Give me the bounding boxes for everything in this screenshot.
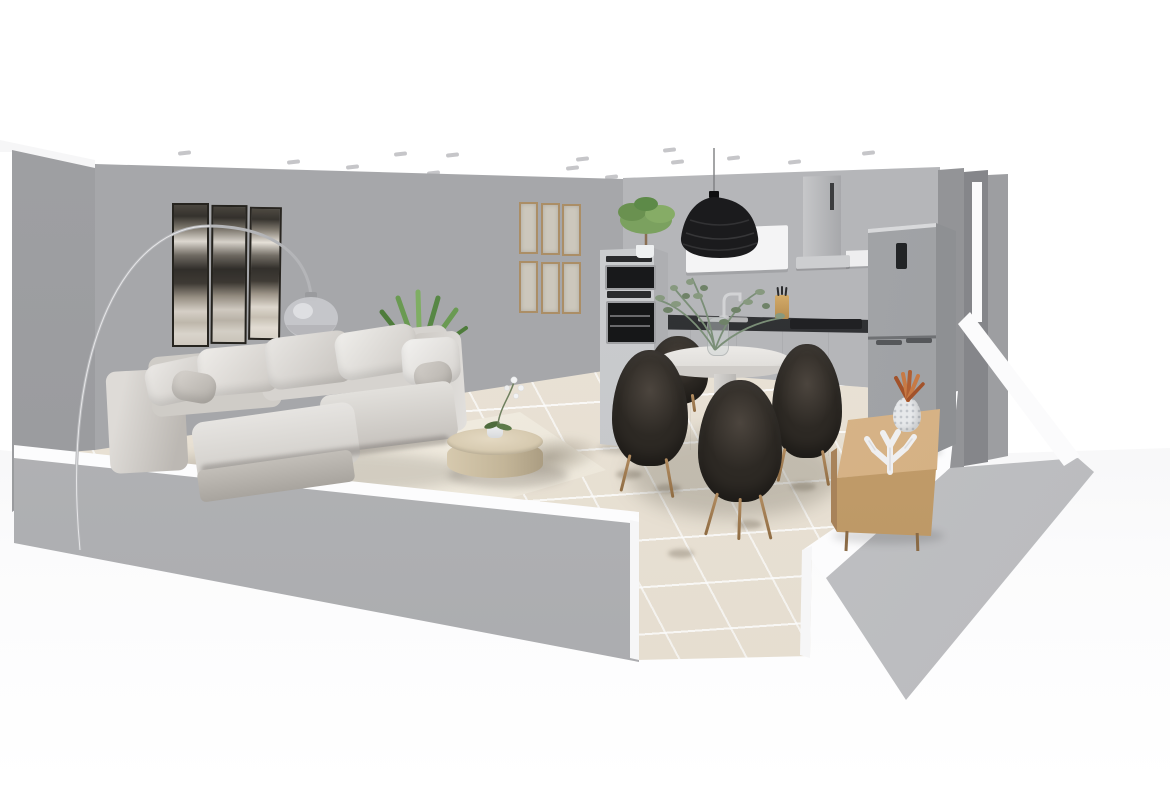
ceiling-spotlight <box>566 165 579 170</box>
chair-shell <box>698 380 782 502</box>
chair-shell <box>772 344 842 458</box>
gallery-frame[interactable] <box>562 204 581 256</box>
ceiling-spotlight <box>788 159 801 164</box>
dining-chair-left[interactable] <box>612 350 688 466</box>
floor-shadow-smudge <box>668 549 694 558</box>
fridge-control-panel <box>896 243 907 269</box>
room-3d-view <box>0 0 1170 785</box>
range-hood-base <box>796 255 850 269</box>
gallery-frame[interactable] <box>562 262 581 314</box>
gallery-frame[interactable] <box>519 261 538 313</box>
coral-decor[interactable] <box>858 424 922 476</box>
cooktop[interactable] <box>790 319 862 329</box>
ceiling-spotlight <box>576 156 589 161</box>
gallery-frame[interactable] <box>519 202 538 254</box>
gallery-frame[interactable] <box>541 203 560 255</box>
dining-chair-front[interactable] <box>698 380 782 502</box>
gallery-frame[interactable] <box>541 262 560 314</box>
ceiling-spotlight <box>862 150 875 155</box>
ceiling-spotlight <box>446 152 459 157</box>
plant-pot <box>636 245 654 258</box>
range-hood-vent <box>830 183 834 210</box>
ceiling-spotlight <box>394 151 407 156</box>
range-hood[interactable] <box>803 175 841 260</box>
chair-shell <box>612 350 688 466</box>
fridge-handle <box>876 340 902 345</box>
fridge-handle <box>906 338 932 343</box>
dining-chair-right[interactable] <box>772 344 842 458</box>
pineapple-leaves <box>890 370 926 402</box>
sideboard-leg <box>916 533 920 551</box>
orchid-plant[interactable] <box>470 368 534 440</box>
